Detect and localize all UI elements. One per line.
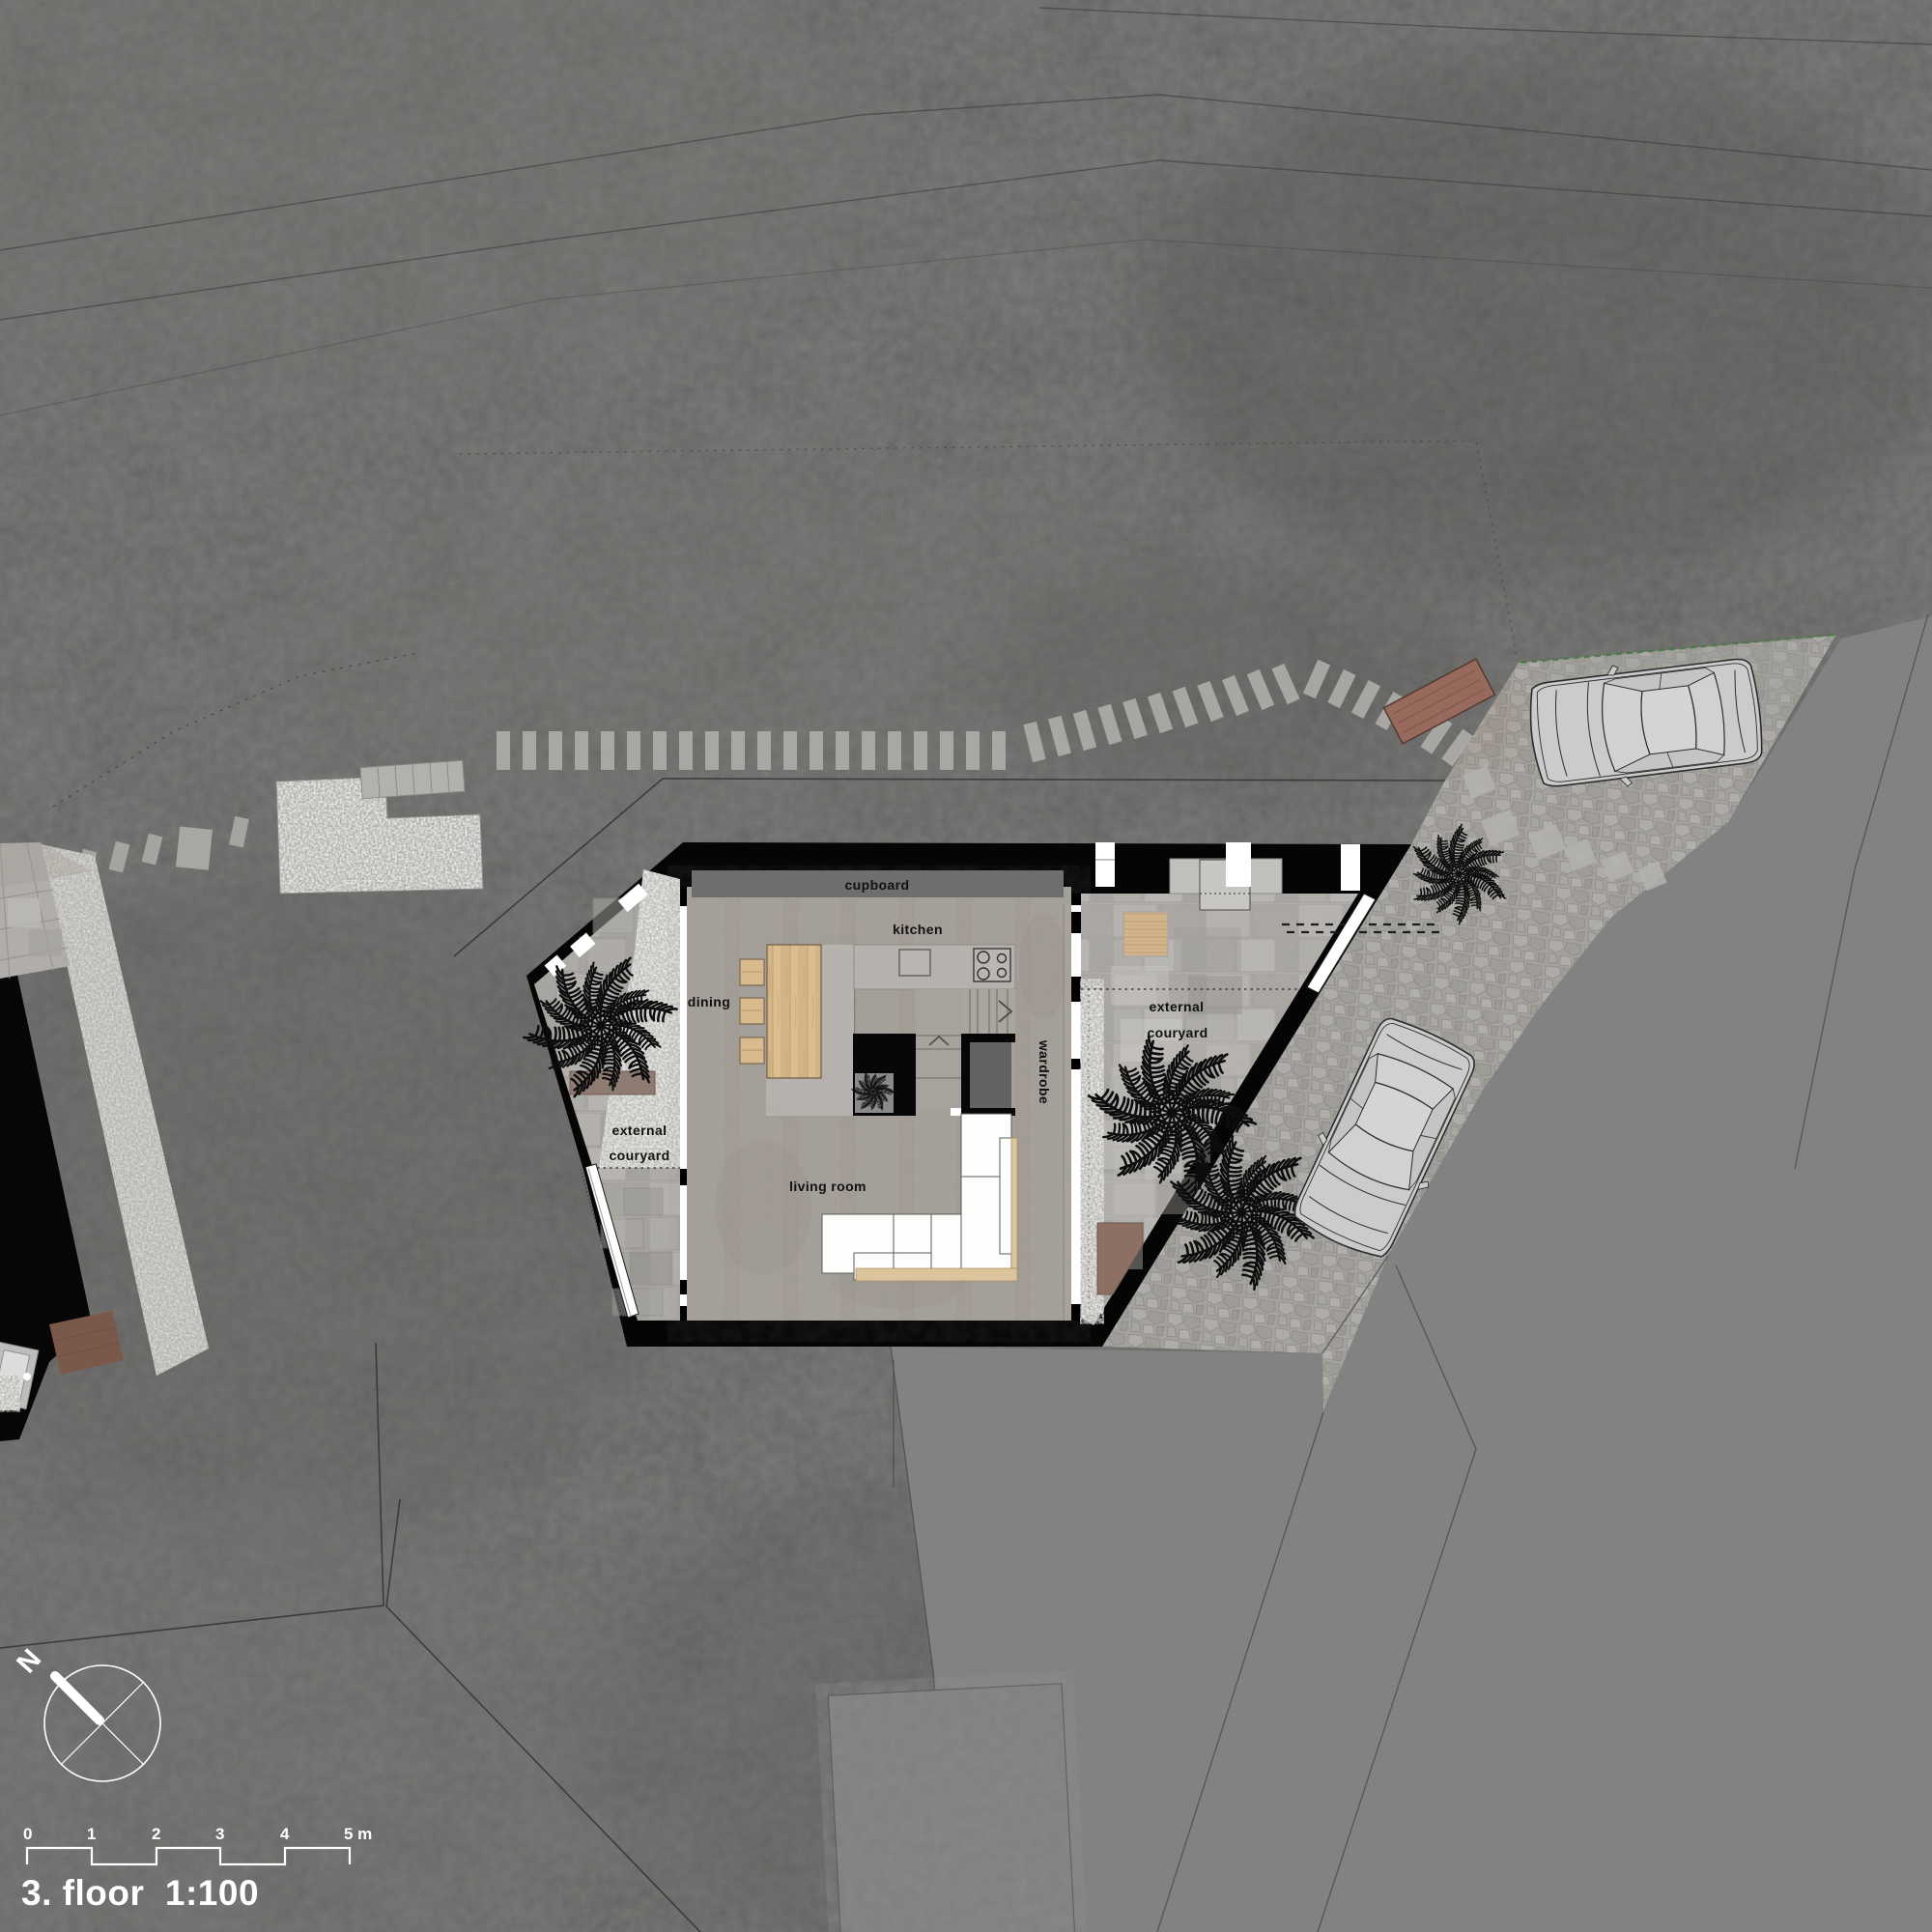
svg-text:2: 2 (152, 1825, 160, 1843)
svg-text:3. floor 1:100: 3. floor 1:100 (21, 1873, 259, 1913)
svg-text:4: 4 (280, 1825, 290, 1843)
svg-text:couryard: couryard (1147, 1025, 1207, 1040)
svg-text:external: external (1150, 999, 1205, 1014)
svg-text:0: 0 (23, 1825, 32, 1843)
svg-text:dining: dining (688, 994, 730, 1009)
svg-text:3: 3 (215, 1825, 224, 1843)
svg-text:1: 1 (87, 1825, 96, 1843)
svg-text:wardrobe: wardrobe (1037, 1039, 1052, 1104)
svg-text:5 m: 5 m (344, 1825, 372, 1843)
svg-text:cupboard: cupboard (845, 877, 910, 893)
svg-text:external: external (612, 1122, 668, 1138)
svg-text:couryard: couryard (609, 1148, 669, 1163)
svg-text:living room: living room (789, 1179, 867, 1194)
svg-text:kitchen: kitchen (893, 922, 943, 937)
